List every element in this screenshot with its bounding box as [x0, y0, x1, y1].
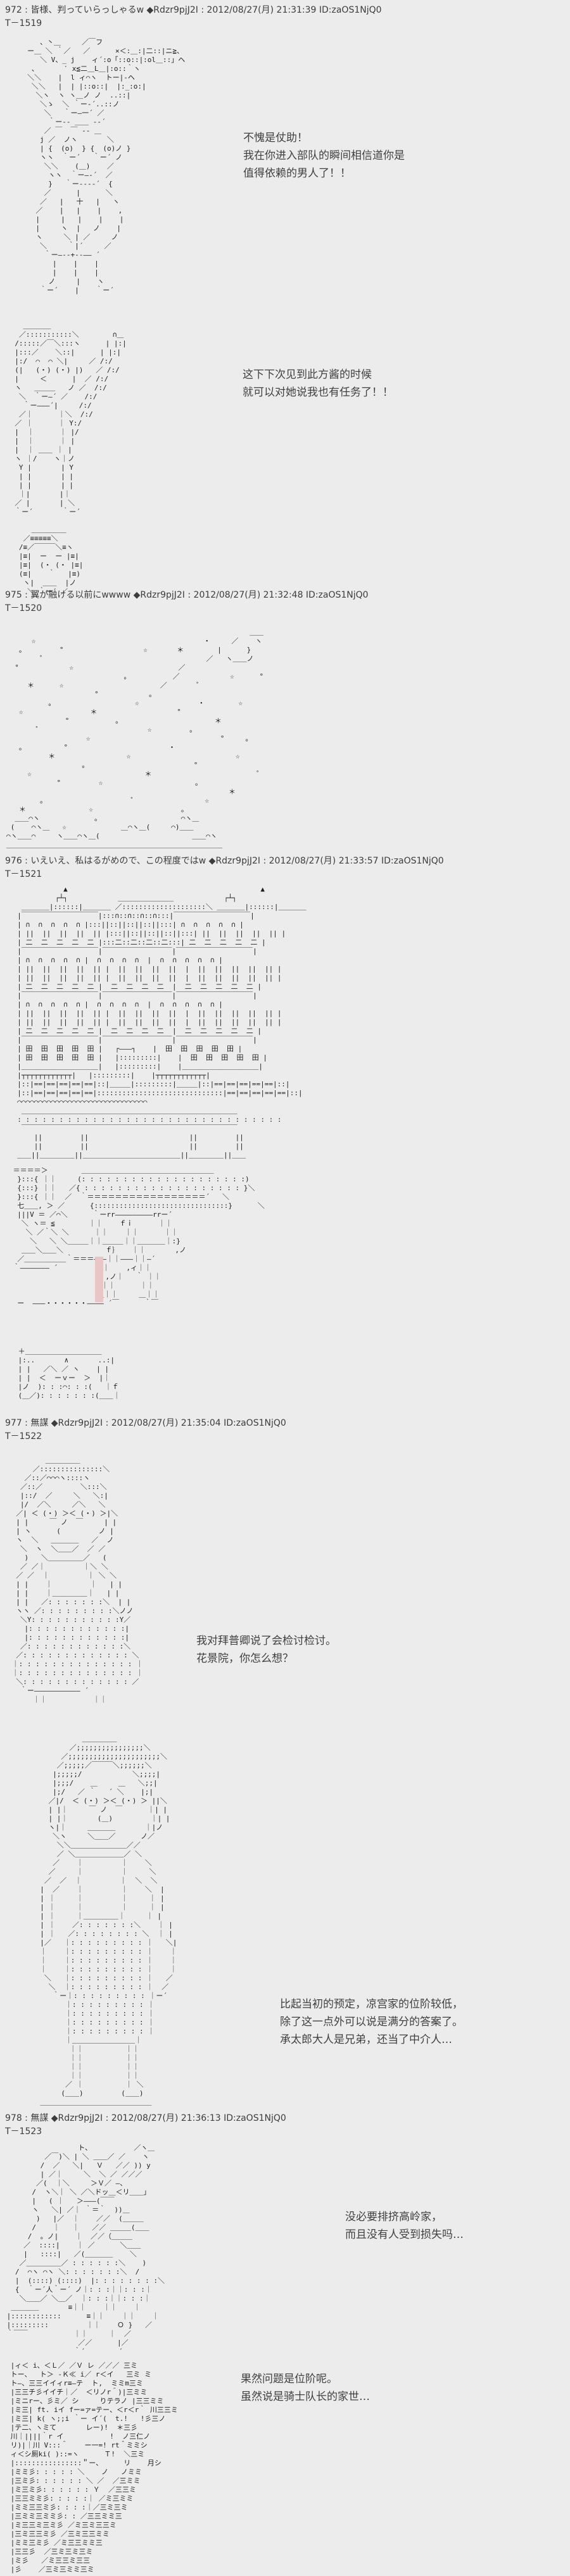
post-972-ascii-art: 、丶＿ ／￣フ ー＿ ＼ ｀／ ／ ×＜:＿:|二::|ニ≧、 ＼ V、_ j …: [6, 38, 185, 596]
post-976-ascii-art-building: ▲ ▲ ┌┴┐ ＿＿＿＿＿＿＿＿ ┌┴┐ ＿＿＿＿|::::::|＿＿＿＿ ／:…: [9, 885, 307, 1160]
post-977-header: 977 : 無謀 ◆Rdzr9pjJ2I : 2012/08/27(月) 21:…: [5, 1417, 286, 1429]
post-975-ascii-art-stars: ＿＿ ☆ ・ ／ ヽ 。 ° ☆ ＊ | } ゜ ／ ヽ＿＿ノ ° ☆: [6, 628, 263, 850]
post-975-header: 975 : 翼が融ける以前にwwww ◆Rdzr9pjJ2I : 2012/08…: [5, 589, 369, 601]
post-972-speech-bubble-2: 这下下次见到此方酱的时候 就可以对她说我也有任务了！！: [243, 366, 393, 401]
post-977-speech-bubble-2: 比起当初的预定，凉宫家的位阶较低， 除了这一点外可以说是满分的答案了。 承太郎大…: [280, 1995, 463, 2049]
post-978-speech-bubble-2: 果然问题是位阶呢。 虽然说是骑士队长的家世…: [241, 2370, 370, 2406]
post-978-ascii-art-face: |ィ＜ i、＜Ｌ／ ／Ｖ レ ／／／ 三ミ トー、 ト＞ -Ｋ≪ i／ r＜イ …: [6, 2361, 178, 2574]
post-976-tnum: T－1521: [5, 867, 42, 880]
post-977-tnum: T－1522: [5, 1429, 42, 1442]
post-972-tnum: T－1519: [5, 16, 42, 29]
post-978-speech-bubble-1: 没必要排挤高岭家， 而且没有人受到损失吗…: [345, 2208, 464, 2244]
post-978-header: 978 : 無謀 ◆Rdzr9pjJ2I : 2012/08/27(月) 21:…: [5, 2112, 286, 2125]
post-978-ascii-art-horse: ト、 ／ヽ＿ ／￣)＼ | ＼ ＿＿／ ／ ヽ / ／ ＼| Ｖ ／／ )) y…: [3, 2144, 165, 2356]
post-975-tnum: T－1520: [5, 601, 42, 614]
chair-pink-accent: [95, 1257, 103, 1302]
thread-page: 972 : 皆様、判っていらっしゃるw ◆Rdzr9pjJ2I : 2012/0…: [0, 0, 570, 2576]
post-977-speech-bubble-1: 我对拜普卿说了会检讨检讨。 花景院，你怎么想？: [196, 1632, 336, 1668]
post-976-ascii-art-hall: ＝＝＝＝＞ ＿＿＿＿＿＿＿＿＿＿＿＿＿＿＿＿＿＿＿ }:::{ ｜｜ (: : …: [9, 1166, 265, 1308]
post-977-ascii-art-lady: ＿＿＿＿＿ ／:::::::::::::::＼ ／::／⌒⌒⌒ヽ::::ヽ ／:…: [8, 1456, 143, 1704]
post-978-tnum: T－1523: [5, 2125, 42, 2137]
post-976-ascii-art-portrait: ＋＿＿＿＿＿＿＿＿＿＿＿ |:.. ∧ ..:| | | ／＼ ／ ヽ | | …: [14, 1347, 120, 1400]
post-972-speech-bubble-1: 不愧是仗助！ 我在你进入部队的瞬间相信道你是 值得依赖的男人了！！: [243, 129, 405, 182]
post-972-header: 972 : 皆様、判っていらっしゃるw ◆Rdzr9pjJ2I : 2012/0…: [5, 4, 382, 16]
post-977-ascii-art-man: ＿＿＿＿＿ ／;;;;;;;;;;;;;;;;＼ ／;;;;;;;;;;;;;;…: [32, 1735, 177, 2107]
post-976-header: 976 : いえいえ、私はるがめので、この程度ではw ◆Rdzr9pjJ2I :…: [5, 855, 444, 867]
